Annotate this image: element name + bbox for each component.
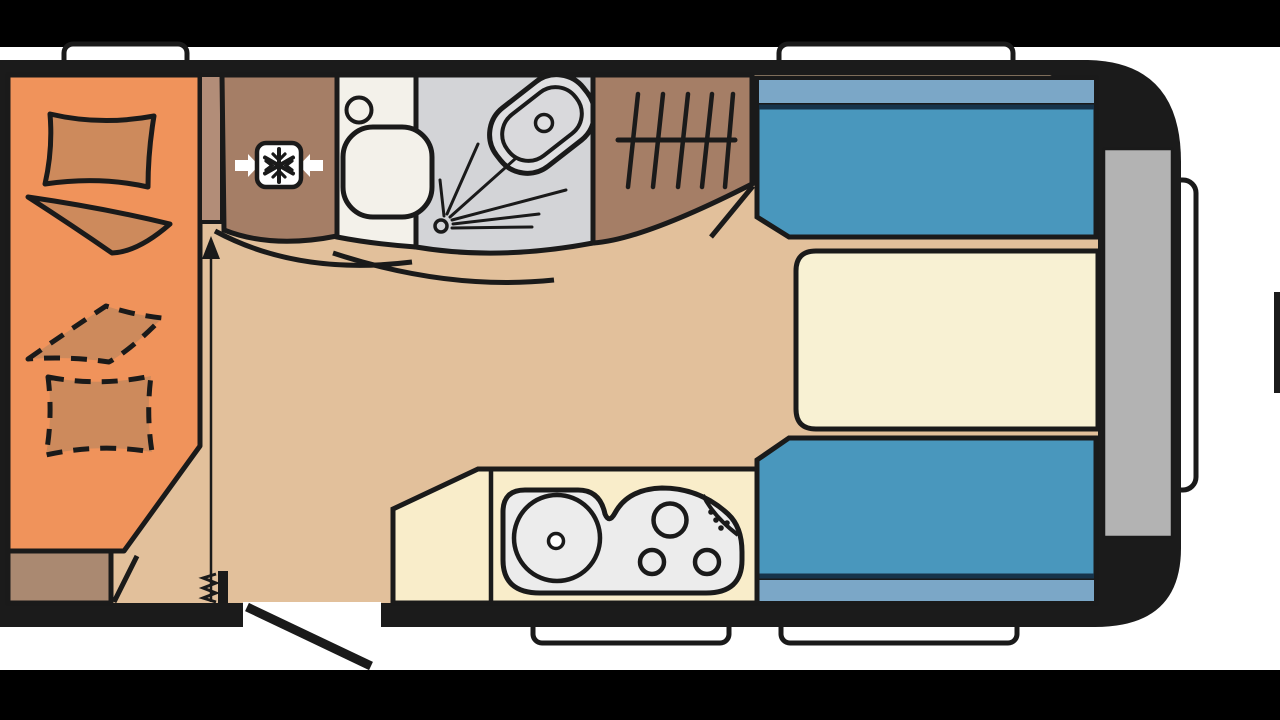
toilet-bowl-icon (343, 127, 432, 217)
seat-bottom-backrest (757, 578, 1096, 603)
dinette-table (796, 251, 1098, 429)
floor-plan-diagram (0, 0, 1280, 720)
letterbox-top (0, 0, 1280, 47)
hitch-stub (1274, 292, 1280, 393)
basin-drain (536, 115, 553, 132)
pillow-dashed-icon (46, 376, 152, 455)
front-locker-panel (1104, 149, 1172, 537)
seat-top-backrest (757, 78, 1096, 105)
dinette (757, 78, 1098, 603)
door-post (218, 571, 228, 603)
french-bed (8, 75, 200, 551)
hob-burner-right (695, 550, 719, 574)
video-frame (0, 0, 1280, 720)
letterbox-bottom (0, 670, 1280, 720)
cabinet-side-panel (200, 75, 222, 222)
hob-burner-large (654, 504, 687, 537)
sink-drain (549, 534, 564, 549)
wardrobe (593, 75, 753, 243)
entry-step (8, 551, 111, 603)
kitchen (393, 469, 757, 603)
pillow-icon (45, 114, 154, 187)
toilet-cistern-icon (347, 98, 372, 123)
hob-burner-left (640, 550, 664, 574)
